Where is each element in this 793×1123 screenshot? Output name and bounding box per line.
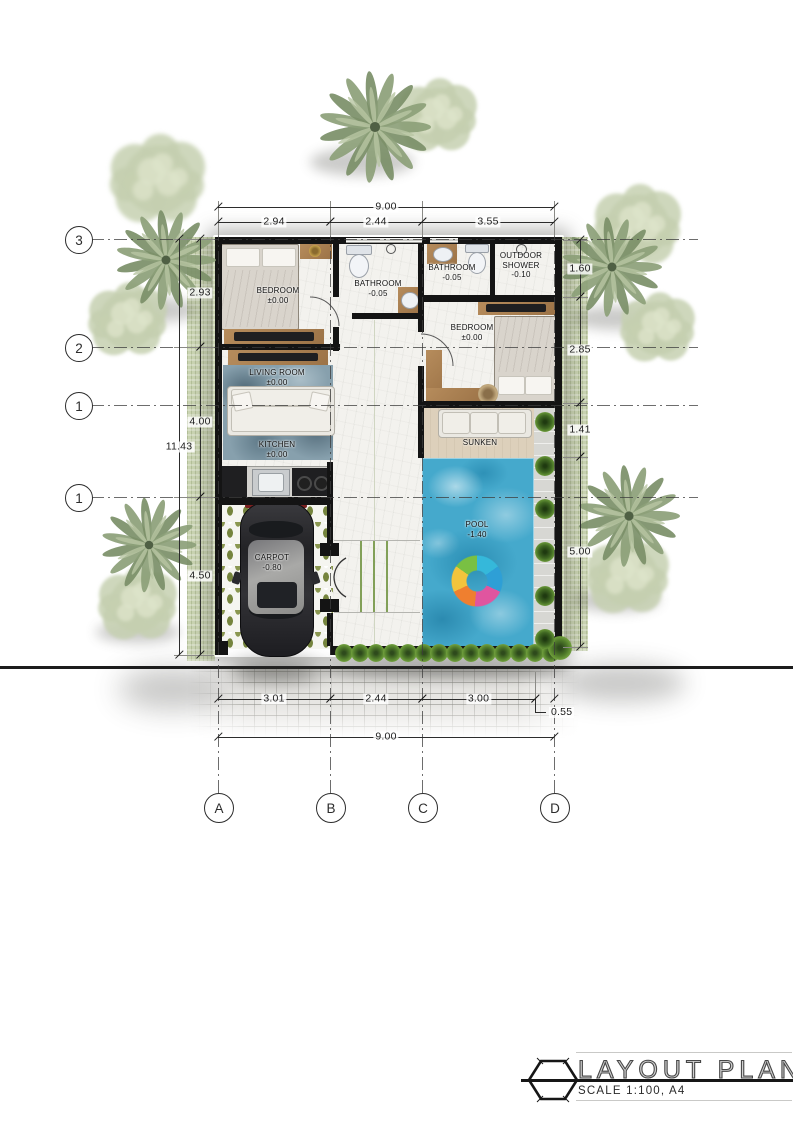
wall-core-upper	[418, 237, 424, 332]
stove-burner-left	[297, 476, 312, 491]
room-label-bedroom-2: BEDROOM±0.00	[437, 323, 507, 342]
room-name-sunken: SUNKEN	[445, 438, 515, 448]
room-name-kitchen: KITCHEN	[237, 440, 317, 450]
tree-shadow	[102, 297, 198, 323]
room-label-outdoor-shower: OUTDOOR SHOWER-0.10	[493, 251, 549, 280]
bed2-pillow-right	[525, 376, 552, 395]
dim-right-seg-3-label: 5.00	[567, 547, 592, 558]
wall-bath1-bottom	[352, 313, 422, 319]
room-name-bathroom-1: BATHROOM	[343, 279, 413, 289]
ext-left-2	[174, 497, 214, 498]
room-label-carport: CARPOT-0.80	[237, 553, 307, 572]
room-level-outdoor-shower: -0.10	[493, 270, 549, 280]
ext-right-4	[563, 647, 588, 648]
tree-shadow-left	[118, 668, 228, 710]
bath1-toilet-bowl	[349, 254, 369, 278]
dim-bottom-offset-vline	[535, 699, 536, 712]
entry-step-edge-bottom	[334, 612, 420, 613]
room-level-bathroom-2: -0.05	[419, 273, 485, 283]
sofa-seat	[231, 406, 331, 432]
entry-step-planting-2	[373, 541, 375, 612]
tree-palm-icon	[102, 497, 197, 592]
poolside-planter-strip	[534, 408, 555, 648]
fridge	[222, 466, 247, 497]
room-name-outdoor-shower: OUTDOOR SHOWER	[493, 251, 549, 270]
room-label-bathroom-1: BATHROOM-0.05	[343, 279, 413, 298]
ext-right-0	[563, 240, 588, 241]
grid-bubble-row-2: 2	[65, 334, 93, 362]
grid-bubble-col-D: D	[540, 793, 570, 823]
grid-bubble-col-B: B	[316, 793, 346, 823]
bed1-lamp	[309, 245, 321, 257]
dim-top-overall-label: 9.00	[373, 202, 398, 213]
entry-step-planting-1	[360, 541, 362, 612]
room-level-bedroom-2: ±0.00	[437, 333, 507, 343]
layout-plan-page: 9.002.942.443.553.012.443.000.559.0011.4…	[0, 0, 793, 1123]
entry-step-planting-3	[386, 541, 388, 612]
bath1-shower-head-icon	[386, 244, 396, 254]
hedge-shadow	[320, 662, 570, 678]
tree-shadow	[96, 621, 180, 643]
room-name-bedroom-1: BEDROOM	[238, 286, 318, 296]
dim-bottom-seg-1-label: 2.44	[363, 694, 388, 705]
room-level-bedroom-1: ±0.00	[238, 296, 318, 306]
bed2-wardrobe-horizontal	[426, 388, 484, 402]
room-label-bedroom-1: BEDROOM±0.00	[238, 286, 318, 305]
grid-line-col-A	[218, 230, 219, 793]
wall-stub-bottom-left	[215, 641, 228, 655]
titleblock-rule-top	[576, 1052, 792, 1053]
bed1-pillow-right	[262, 248, 296, 267]
living-tv	[238, 353, 318, 361]
grid-line-col-B	[330, 230, 331, 793]
tree-bush-icon	[586, 536, 669, 613]
bed2-pillow-left	[498, 376, 525, 395]
room-name-bedroom-2: BEDROOM	[437, 323, 507, 333]
tree-bush-icon	[88, 282, 167, 355]
grid-bubble-row-1: 1	[65, 392, 93, 420]
bed1-tv	[234, 332, 314, 341]
tree-bush-icon	[110, 134, 205, 223]
ext-right-3	[563, 457, 588, 458]
ext-right-2	[563, 403, 588, 404]
dim-top-seg-1-label: 2.44	[363, 217, 388, 228]
drawing-scale: SCALE 1:100, A4	[578, 1085, 686, 1097]
car-rear-window	[249, 521, 303, 538]
room-name-bathroom-2: BATHROOM	[419, 263, 485, 273]
room-level-kitchen: ±0.00	[237, 450, 317, 460]
dim-bottom-seg-0-label: 3.01	[261, 694, 286, 705]
tree-bush-icon	[620, 292, 695, 361]
bed1-pillow-left	[226, 248, 260, 267]
tree-bush-icon	[98, 566, 177, 639]
room-label-kitchen: KITCHEN±0.00	[237, 440, 317, 459]
tree-bush-icon	[398, 78, 477, 151]
dim-left-seg-2-label: 4.50	[187, 571, 212, 582]
car-entry-shadow	[230, 660, 322, 682]
north-hexagon-icon	[523, 1054, 585, 1106]
dim-bottom-offset-label: 0.55	[549, 707, 574, 718]
pool-float-ring	[451, 555, 503, 607]
grid-bubble-col-A: A	[204, 793, 234, 823]
dim-bottom-overall-label: 9.00	[373, 732, 398, 743]
dim-left-seg-1-label: 4.00	[187, 417, 212, 428]
pot-plant-icon	[535, 412, 555, 432]
grid-bubble-col-C: C	[408, 793, 438, 823]
wall-kitchen-bottom	[215, 497, 333, 505]
property-line	[0, 666, 793, 669]
grid-bubble-row-1: 1	[65, 484, 93, 512]
sink-basin	[258, 473, 284, 492]
grid-line-row-1	[91, 405, 698, 406]
car-sunroof	[257, 582, 297, 608]
grass-strip-right	[562, 237, 588, 651]
wall-bathrow-bottom	[422, 295, 562, 302]
tree-shadow-right	[556, 664, 686, 702]
grid-line-col-C	[422, 230, 423, 793]
grid-bubble-row-3: 3	[65, 226, 93, 254]
tree-shadow	[310, 148, 414, 176]
entry-step-edge-top	[334, 540, 420, 541]
bed2-tv	[486, 304, 546, 312]
tree-palm-icon	[578, 465, 680, 568]
dim-bottom-offset-hline	[535, 712, 546, 713]
room-name-pool: POOL	[447, 520, 507, 530]
dim-top-seg-0-label: 2.94	[261, 217, 286, 228]
sofa-pillow-right	[308, 391, 330, 412]
pool-water	[422, 458, 534, 648]
titleblock-rule-bottom	[576, 1100, 792, 1101]
ext-right-1	[563, 297, 588, 298]
room-label-bathroom-2: BATHROOM-0.05	[419, 263, 485, 282]
dim-left-seg-0-label: 2.93	[187, 288, 212, 299]
sunken-sofa-seat-1	[442, 412, 470, 434]
bath2-basin	[433, 247, 453, 262]
dim-right-seg-2-label: 1.41	[567, 425, 592, 436]
room-label-living-room: LIVING ROOM±0.00	[232, 368, 322, 387]
tree-palm-icon	[319, 71, 431, 184]
sunken-sofa-seat-3	[498, 412, 526, 434]
room-level-pool: -1.40	[447, 530, 507, 540]
dim-top-seg-2-label: 3.55	[475, 217, 500, 228]
room-label-sunken: SUNKEN	[445, 438, 515, 448]
room-level-carport: -0.80	[237, 563, 307, 573]
dim-bottom-seg-2-label: 3.00	[466, 694, 491, 705]
room-name-living-room: LIVING ROOM	[232, 368, 322, 378]
sunken-sofa-seat-2	[470, 412, 498, 434]
wall-bath1-left-upper	[333, 237, 339, 297]
drawing-title: LAYOUT PLAN	[578, 1056, 793, 1085]
dim-left-overall-label: 11.43	[164, 442, 195, 453]
dim-right-seg-1-label: 2.85	[567, 345, 592, 356]
room-name-carport: CARPOT	[237, 553, 307, 563]
tree-bush-icon	[594, 184, 681, 265]
ext-left-1	[174, 347, 214, 348]
room-level-living-room: ±0.00	[232, 378, 322, 388]
dim-right-seg-0-label: 1.60	[567, 263, 592, 274]
room-label-pool: POOL-1.40	[447, 520, 507, 539]
wall-core-lower	[418, 366, 424, 458]
room-level-bathroom-1: -0.05	[343, 289, 413, 299]
